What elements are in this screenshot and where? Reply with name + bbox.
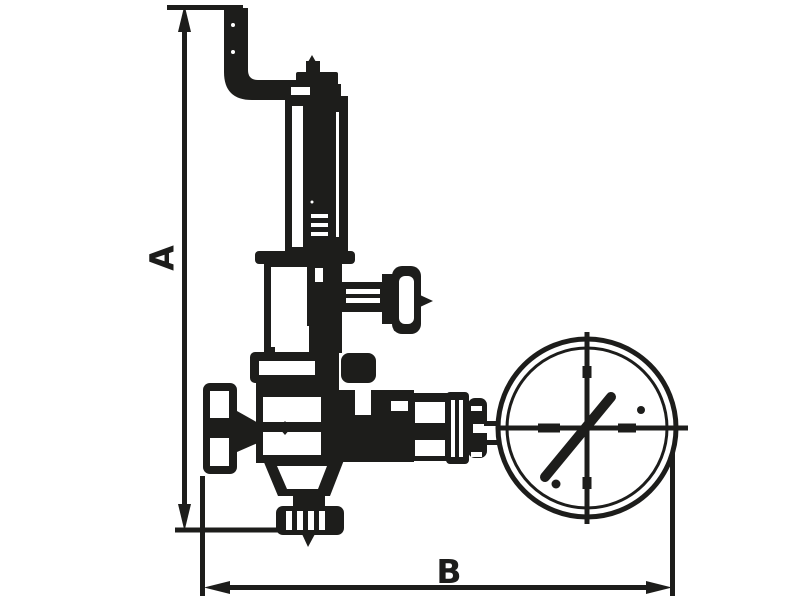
spring-coil-slit <box>311 214 328 218</box>
inlet-union-window <box>210 391 229 418</box>
bonnet <box>264 263 342 353</box>
gauge-union <box>446 392 500 464</box>
gooseneck-pipe-shape <box>224 8 298 100</box>
dimension-b-label: B <box>436 552 461 591</box>
centerline-arrow-icon <box>420 295 433 307</box>
spring-housing <box>285 96 348 253</box>
dimension-b-arrow-left-icon <box>204 581 230 594</box>
right-body-slot <box>391 401 408 411</box>
inlet-union <box>203 383 260 474</box>
upper-flange <box>255 251 355 264</box>
bottom-union-stripe <box>319 511 325 530</box>
gooseneck-pipe <box>224 8 298 100</box>
side-port-handle <box>342 266 433 334</box>
body-window <box>263 432 321 455</box>
upper-flange-plate <box>255 251 355 264</box>
spring-housing-dot <box>311 201 314 204</box>
bottom-union-stripe <box>308 511 314 530</box>
side-port-stem-slit <box>346 298 380 303</box>
dimension-a-arrow-down-icon <box>178 504 191 531</box>
gauge-counterweight-dot <box>552 480 561 489</box>
flange-dot <box>394 327 399 332</box>
adjusting-cap <box>287 55 341 98</box>
pipe-highlight-dot <box>231 23 235 27</box>
bottom-union-stripe <box>286 511 292 530</box>
pipe-highlight-dot <box>231 50 235 54</box>
cap-collar-slot <box>291 87 310 95</box>
page: { "drawing": { "kind": "technical-line-d… <box>0 0 800 598</box>
right-outlet-assembly <box>339 390 500 464</box>
bottom-union-stripe <box>297 511 303 530</box>
bonnet-sliver <box>315 268 323 282</box>
spring-coil-slit <box>311 223 328 227</box>
gauge-pin-dot <box>637 406 645 414</box>
gauge-adapter-slit <box>471 406 482 411</box>
outlet-box-window <box>415 402 445 423</box>
side-port-stem <box>342 282 384 312</box>
outlet-drip-tip <box>302 534 315 547</box>
dimension-a-label: A <box>143 245 182 271</box>
right-body-block <box>339 390 414 462</box>
gauge-union-stripe <box>451 400 455 457</box>
outlet-box-window <box>415 440 445 456</box>
t-handle-slot <box>399 276 414 324</box>
bottom-outlet-union <box>276 506 344 535</box>
bottom-neck <box>293 494 325 508</box>
body-window <box>263 397 321 422</box>
lower-flange-right-boss <box>341 353 376 383</box>
right-body-notch <box>355 390 371 415</box>
side-port-stem-slit <box>346 289 380 294</box>
cap-top <box>296 72 338 86</box>
gauge-adapter-slit <box>471 452 482 457</box>
dimension-b-arrow-right-icon <box>646 581 672 594</box>
gauge-union-stripe <box>459 400 463 457</box>
cap-tip <box>308 55 316 62</box>
gauge-union-nut <box>446 392 469 464</box>
spring-housing-hairline <box>336 112 339 237</box>
lower-flange-window <box>259 361 323 375</box>
inlet-union-window <box>210 438 229 466</box>
drawing-stage: A B <box>0 0 800 598</box>
valve-technical-drawing: A B <box>0 0 800 598</box>
pressure-gauge <box>498 332 688 524</box>
bonnet-lower-notch <box>275 326 309 352</box>
spring-coil-slit <box>311 232 328 236</box>
spring-housing-slot <box>292 106 303 247</box>
bottom-outlet <box>263 460 344 547</box>
